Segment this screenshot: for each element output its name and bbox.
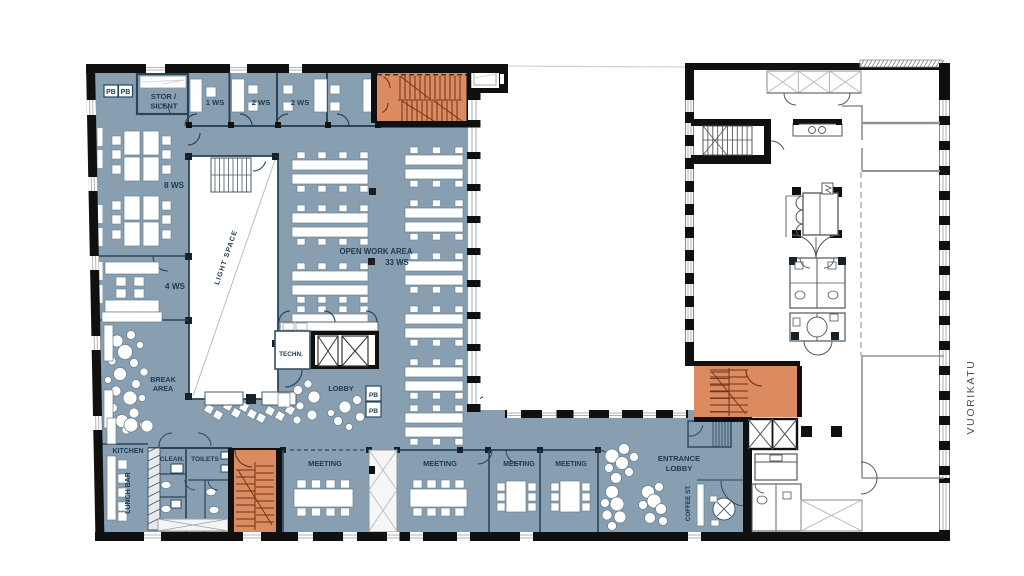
svg-text:KITCHEN: KITCHEN <box>112 448 143 455</box>
svg-text:TOILETS: TOILETS <box>191 456 219 463</box>
svg-text:LOBBY: LOBBY <box>666 464 693 473</box>
svg-text:MEETING: MEETING <box>503 461 534 468</box>
svg-text:1 WS: 1 WS <box>206 98 225 107</box>
svg-text:AREA: AREA <box>153 384 173 393</box>
svg-text:2 WS: 2 WS <box>252 98 271 107</box>
svg-text:33 WS: 33 WS <box>385 258 408 267</box>
svg-text:STOR /: STOR / <box>151 92 177 101</box>
svg-text:2 WS: 2 WS <box>291 98 310 107</box>
svg-text:SILENT: SILENT <box>150 102 177 111</box>
svg-text:PB: PB <box>369 392 378 399</box>
svg-text:TECHN.: TECHN. <box>279 351 303 358</box>
svg-text:MEETING: MEETING <box>423 459 457 468</box>
svg-text:PB: PB <box>121 89 131 96</box>
svg-text:PB: PB <box>106 89 116 96</box>
svg-text:MEETING: MEETING <box>308 459 342 468</box>
svg-text:PB: PB <box>369 408 378 415</box>
svg-text:MEETING: MEETING <box>555 461 586 468</box>
svg-text:VUORIKATU: VUORIKATU <box>965 360 977 435</box>
svg-text:LOBBY: LOBBY <box>328 384 353 393</box>
svg-text:ENTRANCE: ENTRANCE <box>658 454 700 463</box>
svg-text:COFFEE ST.: COFFEE ST. <box>685 485 692 522</box>
svg-text:BREAK: BREAK <box>150 375 176 384</box>
svg-text:CLEAN.: CLEAN. <box>160 456 185 463</box>
svg-text:8 WS: 8 WS <box>164 181 185 190</box>
svg-text:LUNCH BAR: LUNCH BAR <box>125 472 132 514</box>
svg-text:4 WS: 4 WS <box>165 282 186 291</box>
svg-text:OPEN WORK AREA: OPEN WORK AREA <box>340 247 413 256</box>
